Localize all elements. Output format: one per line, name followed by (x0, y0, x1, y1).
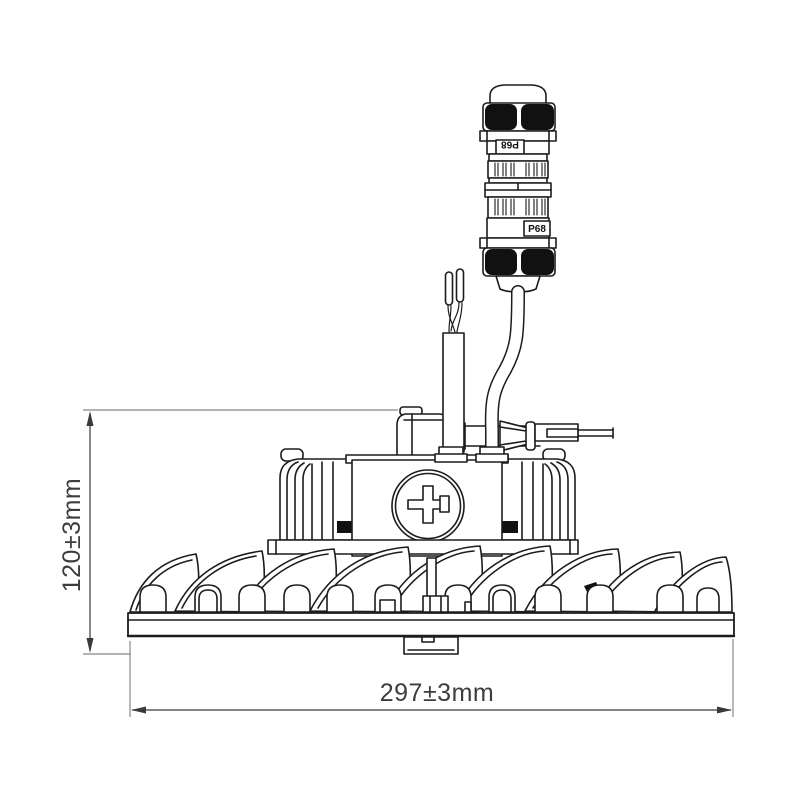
heatsink-fins (130, 540, 732, 612)
knurled-ring-bottom (483, 248, 555, 276)
technical-drawing-canvas: P68 (0, 0, 800, 800)
arrow-left-icon (131, 707, 146, 714)
arrow-right-icon (717, 707, 732, 714)
knurled-ring-top (483, 103, 555, 131)
width-dimension-label: 297±3mm (380, 679, 495, 707)
adjustment-dial (392, 470, 464, 542)
vent-slot-left (337, 521, 353, 533)
arrow-up-icon (87, 411, 94, 426)
connector-label-bottom: P68 (528, 224, 546, 235)
height-dimension-label: 120±3mm (58, 478, 86, 593)
center-post (427, 558, 436, 598)
base-rim (128, 613, 734, 636)
bottom-tab (404, 637, 458, 654)
power-cord (443, 269, 464, 452)
connector-label-top: P68 (501, 138, 519, 149)
connector-dome-cap (490, 85, 546, 104)
vent-slot-right (502, 521, 518, 533)
arrow-down-icon (87, 638, 94, 653)
power-cord-jacket (443, 333, 464, 452)
ip68-connector: P68 (480, 85, 556, 292)
wire-ferrule-left (446, 272, 453, 305)
wire-ferrule-right (457, 269, 464, 302)
fixture-line-drawing: P68 (0, 0, 800, 800)
